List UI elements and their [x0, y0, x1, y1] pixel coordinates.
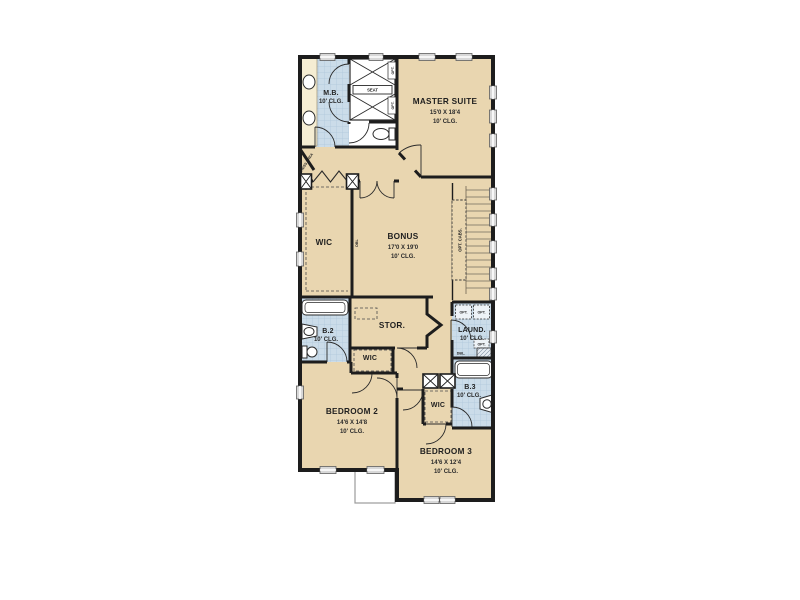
- open-annex-below: [355, 470, 395, 503]
- bonus-label: BONUS: [387, 232, 418, 241]
- post-dress-left: [301, 174, 312, 189]
- bedroom3-dims: 14'6 X 12'4: [431, 460, 462, 466]
- master-suite-label: MASTER SUITE: [413, 97, 478, 106]
- bath2-clg: 10' CLG.: [314, 337, 338, 343]
- bedroom3-label: BEDROOM 3: [420, 447, 472, 456]
- bath2-toilet-bowl: [307, 347, 317, 357]
- bath3-label: B.3: [464, 384, 476, 391]
- seat-label: SEAT: [367, 88, 378, 93]
- wic-bed3-label: WIC: [431, 402, 445, 409]
- post-dress-right: [347, 174, 359, 189]
- master-bath-clg: 10' CLG.: [319, 99, 343, 105]
- post-wic3-right: [440, 374, 455, 388]
- laundry-label: LAUND.: [458, 327, 486, 334]
- dbl-laundry-label: DBL.: [457, 352, 465, 356]
- opt-dryer-label: OPT.: [478, 311, 486, 315]
- floor-plan-page: OPT. CABS.: [0, 0, 800, 600]
- bath3-clg: 10' CLG.: [457, 393, 481, 399]
- bath3-tub-inner: [458, 364, 490, 376]
- wic-master-label: WIC: [316, 238, 333, 247]
- master-toilet-tank: [389, 128, 395, 140]
- opt-shower-upper-label: OPT.: [391, 66, 395, 74]
- bath2-tub-inner: [305, 303, 345, 313]
- opt-laundry-cab-label: OPT.: [478, 343, 486, 347]
- bedroom2-clg: 10' CLG.: [340, 429, 364, 435]
- bath2-toilet-tank: [302, 346, 307, 358]
- floor-plan-svg: OPT. CABS.: [0, 0, 800, 600]
- laundry-sink: [477, 348, 491, 357]
- storage-label: STOR.: [379, 321, 405, 330]
- master-suite-clg: 10' CLG.: [433, 119, 457, 125]
- master-sink-1: [303, 75, 315, 89]
- wic-bed2-label: WIC: [363, 355, 377, 362]
- bath3-sink: [483, 400, 491, 408]
- bedroom3-clg: 10' CLG.: [434, 469, 458, 475]
- master-bath-vanity-counter: [300, 58, 317, 146]
- opt-washer-label: OPT.: [460, 311, 468, 315]
- master-toilet-bowl: [373, 129, 389, 140]
- master-sink-2: [303, 111, 315, 125]
- bonus-dims: 17'0 X 19'0: [388, 245, 419, 251]
- dbl-master-closet-label: DBL: [355, 239, 359, 247]
- bedroom2-dims: 14'6 X 14'8: [337, 420, 368, 426]
- post-wic3-left: [423, 374, 438, 388]
- bath2-label: B.2: [322, 328, 334, 335]
- opt-cabs-label: OPT. CABS.: [458, 228, 463, 252]
- bonus-clg: 10' CLG.: [391, 254, 415, 260]
- laundry-clg: 10' CLG.: [460, 336, 484, 342]
- opt-shower-lower-label: OPT.: [391, 101, 395, 109]
- master-bath-label: M.B.: [323, 90, 339, 97]
- master-suite-dims: 15'0 X 18'4: [430, 110, 461, 116]
- bath2-sink: [304, 328, 314, 336]
- bedroom2-label: BEDROOM 2: [326, 407, 378, 416]
